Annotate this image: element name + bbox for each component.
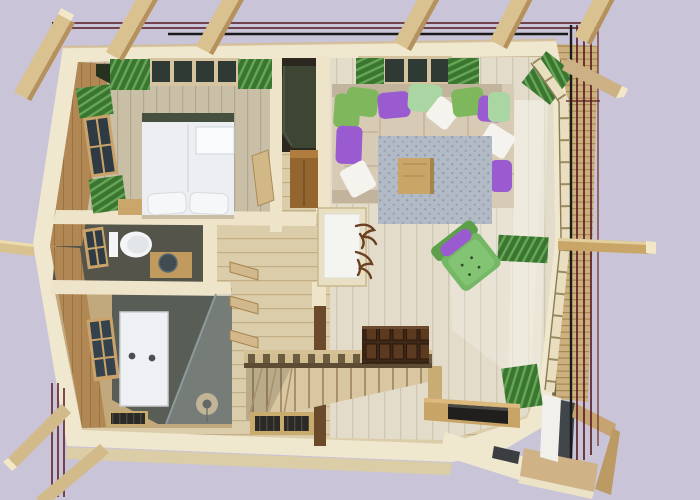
window-pane — [174, 61, 192, 82]
porch-white-wall — [540, 394, 561, 462]
flue-dark-strip — [558, 400, 575, 459]
pillow-purple — [490, 160, 512, 192]
curtain-green — [497, 235, 548, 264]
window-pane — [196, 61, 214, 82]
window-pane — [152, 61, 170, 82]
double-bed — [142, 113, 234, 219]
pillow-purple — [335, 126, 362, 165]
duvet-fold — [196, 127, 234, 154]
vent-grille — [284, 416, 309, 431]
chest-top-edge — [362, 326, 429, 329]
coffee-table — [398, 158, 434, 194]
curtain-green — [76, 84, 114, 118]
floor-plan-render — [0, 0, 700, 500]
toilet-seat — [127, 236, 149, 254]
curtain-green — [110, 59, 150, 90]
bath-mat — [108, 411, 148, 426]
cabinet-top — [290, 150, 318, 158]
table-edge — [430, 158, 434, 194]
window-pane — [408, 59, 427, 82]
washbasin-counter — [150, 252, 192, 278]
shower-glass-panel — [120, 312, 168, 406]
window-pane — [431, 59, 449, 82]
wall-wc-right — [203, 222, 217, 286]
pillow-green — [333, 93, 361, 129]
curtain-green — [238, 59, 272, 89]
area-rug — [378, 136, 492, 224]
toilet — [109, 232, 152, 258]
shower-handle — [129, 353, 136, 360]
bedside-bench — [118, 199, 142, 215]
toilet-tank — [109, 232, 118, 257]
window-pane — [385, 59, 404, 82]
pillow-mint — [488, 92, 510, 122]
vent-grille — [255, 416, 280, 431]
chest-body — [362, 326, 429, 364]
pillow-purple — [377, 91, 411, 120]
wall-center-upper — [316, 56, 330, 214]
floor-vent — [250, 412, 314, 435]
door-leaf — [324, 214, 360, 278]
chest-of-drawers — [362, 326, 429, 364]
shower-handle — [149, 355, 156, 362]
bed-pillow — [189, 192, 228, 215]
bed-pillow — [147, 192, 186, 216]
window-pane — [218, 61, 236, 82]
mat-slats — [111, 413, 145, 424]
